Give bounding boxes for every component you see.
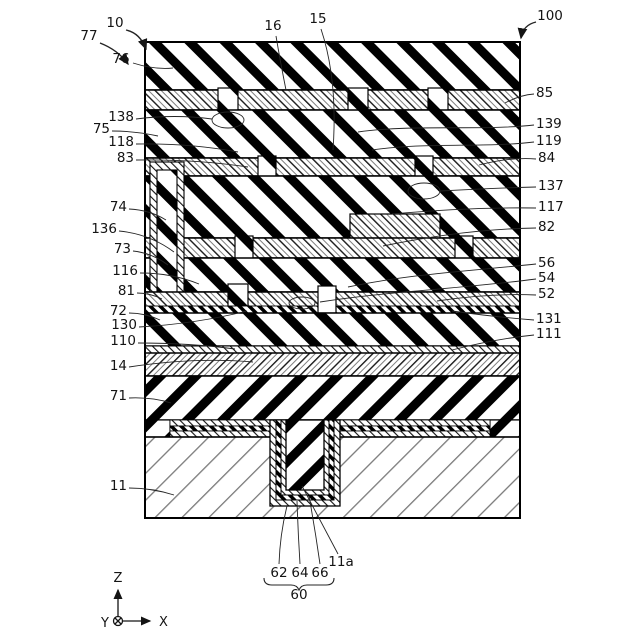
- interlayer-14-region: [145, 353, 520, 376]
- interlayer-83-84-region: [145, 158, 520, 176]
- ref-label-54: 54: [538, 270, 555, 286]
- ref-label-83: 83: [117, 150, 134, 166]
- via-region: [218, 88, 238, 112]
- ref-label-52: 52: [538, 286, 555, 302]
- interlayer-85-region: [145, 90, 520, 110]
- gate-region: [318, 286, 336, 313]
- ref-label-116: 116: [112, 263, 138, 279]
- ref-label-66: 66: [311, 565, 328, 581]
- ref-label-100: 100: [537, 8, 563, 24]
- ref-label-139: 139: [536, 116, 562, 132]
- contact-block-region: [228, 284, 248, 308]
- ref-label-131: 131: [536, 311, 562, 327]
- layer-75-region: [145, 110, 520, 158]
- patent-cross-section-svg: 1077100761615138751188374136731168172130…: [0, 0, 640, 640]
- layer-71-edge: [490, 420, 520, 437]
- embedded-dielectric-region: [350, 214, 440, 238]
- layer-stack: [145, 42, 520, 518]
- layer-71-region: [145, 376, 520, 420]
- z-axis-label: Z: [114, 571, 123, 586]
- ref-label-119: 119: [536, 133, 562, 149]
- ref-label-73: 73: [114, 241, 131, 257]
- ref-label-110: 110: [110, 333, 136, 349]
- liner-62-run: [170, 431, 270, 437]
- x-axis-label: X: [159, 615, 168, 630]
- via-region: [258, 156, 276, 178]
- ref-label-76: 76: [112, 51, 129, 67]
- ref-label-64: 64: [291, 565, 308, 581]
- ref-label-136: 136: [91, 221, 117, 237]
- trench-core-region: [286, 420, 324, 490]
- ref-label-71: 71: [110, 388, 127, 404]
- ref-label-16: 16: [264, 18, 281, 34]
- liner-64-run: [340, 426, 490, 431]
- ref-label-81: 81: [118, 283, 135, 299]
- ref-label-10: 10: [106, 15, 123, 31]
- ref-label-77: 77: [80, 28, 97, 44]
- liner-64-run: [170, 426, 270, 431]
- via-region: [348, 88, 368, 112]
- via-region: [415, 156, 433, 178]
- layer-72-region: [145, 313, 520, 346]
- leader-10: [126, 30, 146, 49]
- ref-label-130: 130: [111, 317, 137, 333]
- liner-66-run: [340, 420, 490, 426]
- ref-label-11: 11: [110, 478, 127, 494]
- via-region: [428, 88, 448, 112]
- ref-label-84: 84: [538, 150, 555, 166]
- layer-71-edge: [145, 420, 170, 437]
- ref-label-117: 117: [538, 199, 564, 215]
- y-axis-label: Y: [100, 616, 109, 631]
- ref-label-14: 14: [110, 358, 127, 374]
- ref-label-111: 111: [536, 326, 562, 342]
- via-region: [235, 236, 253, 260]
- ref-label-82: 82: [538, 219, 555, 235]
- ref-label-15: 15: [309, 11, 326, 27]
- ref-label-56: 56: [538, 255, 555, 271]
- ref-label-85: 85: [536, 85, 553, 101]
- liner-66-run: [170, 420, 270, 426]
- leader-100: [521, 22, 536, 38]
- ref-label-62: 62: [270, 565, 287, 581]
- via-region: [455, 236, 473, 260]
- ref-label-137: 137: [538, 178, 564, 194]
- axis-triad: [114, 590, 151, 626]
- ref-label-74: 74: [110, 199, 127, 215]
- ref-label-11a: 11a: [328, 554, 353, 570]
- layer-74-region: [145, 176, 520, 238]
- ref-label-138: 138: [108, 109, 134, 125]
- liner-62-run: [340, 431, 490, 437]
- figure-stage: 1077100761615138751188374136731168172130…: [0, 0, 640, 640]
- ref-label-118: 118: [108, 134, 134, 150]
